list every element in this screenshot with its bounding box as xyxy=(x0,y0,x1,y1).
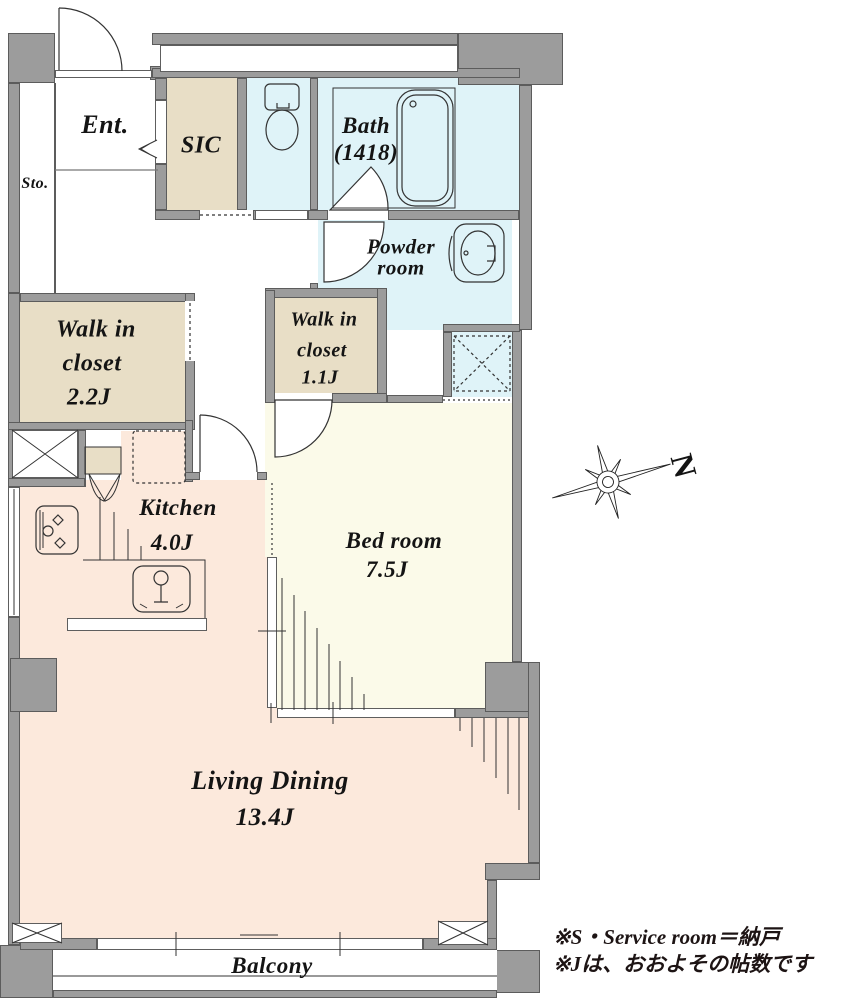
wic-small-label: Walk in xyxy=(290,309,357,332)
bedroom-door-icon xyxy=(275,400,332,457)
washer-icon xyxy=(454,336,510,391)
bedroom-size-label: 7.5J xyxy=(366,557,408,583)
bedroom-hatch-lines xyxy=(282,578,364,710)
living-dining-size-label: 13.4J xyxy=(236,804,295,832)
entrance-marker-icon xyxy=(139,140,157,158)
kitchen-hatch-lines xyxy=(100,497,141,560)
wic-small-label2: closet xyxy=(297,340,347,363)
washbasin-icon xyxy=(449,224,504,282)
compass-north-label: N xyxy=(664,450,705,482)
footnote-service-room: ※S・Service room＝納戸 xyxy=(553,921,780,951)
wic-large-label: Walk in xyxy=(56,317,136,344)
powder-room-label2: room xyxy=(377,256,425,281)
bifold-door-icon xyxy=(85,447,121,501)
bath-door-icon xyxy=(330,167,388,210)
kitchen-door-icon xyxy=(200,415,257,472)
wic-small-size-label: 1.1J xyxy=(302,367,339,390)
kitchen-sink-icon xyxy=(133,566,190,612)
floor-plan: N Ent. Sto. SIC Bath (1418) Powder room … xyxy=(0,0,857,1000)
sic-label: SIC xyxy=(181,133,221,160)
bath-label: Bath xyxy=(342,113,390,139)
living-hatch-lines xyxy=(460,718,519,810)
wic-large-size-label: 2.2J xyxy=(67,385,111,412)
compass-icon: N xyxy=(542,428,705,535)
living-dining-label: Living Dining xyxy=(191,766,348,796)
bathtub-icon xyxy=(397,90,453,206)
toilet-icon xyxy=(265,84,299,150)
entrance-door-icon xyxy=(59,8,122,71)
refrigerator-icon xyxy=(133,431,185,483)
shaft-x-icon xyxy=(12,430,78,478)
shaft-x-icon xyxy=(12,923,62,943)
storage-label: Sto. xyxy=(21,175,48,193)
balcony-label: Balcony xyxy=(231,953,312,979)
entrance-label: Ent. xyxy=(81,110,129,140)
wic-large-label2: closet xyxy=(63,351,122,378)
shaft-x-icon xyxy=(438,921,488,945)
stove-icon xyxy=(36,506,78,554)
kitchen-size-label: 4.0J xyxy=(151,530,193,556)
plan-linework: N xyxy=(0,0,857,1000)
kitchen-label: Kitchen xyxy=(139,495,217,521)
footnote-tatami: ※Jは、おおよその帖数です xyxy=(553,948,812,978)
bath-size-label: (1418) xyxy=(334,140,398,166)
bedroom-label: Bed room xyxy=(346,528,443,554)
